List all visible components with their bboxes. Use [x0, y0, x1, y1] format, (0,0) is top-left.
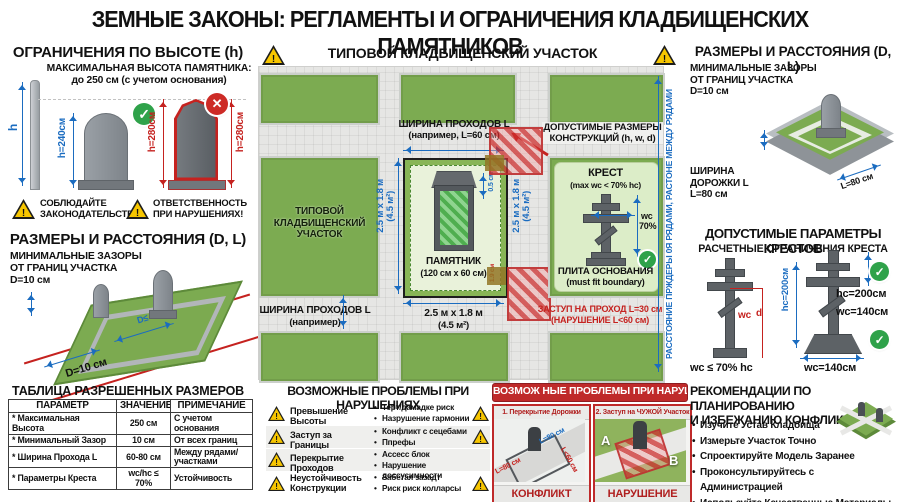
- table-row: * Ширина Прохода L 60-80 см Между рядами…: [9, 446, 253, 467]
- problem-bullets: Терт/дамадке риск Назрушение гармонии: [374, 403, 470, 424]
- warning-glyph: !: [126, 199, 149, 219]
- foreign-plot-art: A B: [595, 419, 686, 482]
- typical-plot-label-line1: ТИПОВОЙ: [261, 206, 378, 218]
- problem-bullet: Риск риск колларсы: [374, 484, 470, 495]
- encroachment-note: (НАРУШЕНИЕ L<60 см): [535, 315, 665, 325]
- foreign-plot-title: 2. Заступ на ЧУЖОЙ Участок: [595, 406, 690, 420]
- row-spacing-label: РАССТОЯНИЕ ПРЖДЕРЫ 0Я РЯДАМИ, РАСТОНЕ МЕ…: [664, 70, 674, 378]
- ok-monument-base: [78, 180, 134, 190]
- check-icon: ✓: [870, 330, 889, 349]
- iso-monument-base: [816, 128, 846, 138]
- allowed-cross-top-dim: [868, 252, 869, 286]
- violation-caption: НАРУШЕНИЕ: [595, 485, 690, 502]
- liability-warning: ОТВЕТСТВЕННОСТЬ ПРИ НАРУШЕНИЯХ!: [153, 197, 255, 219]
- measuring-pole: [30, 80, 40, 190]
- problem-row: ! Превышение Высоты Терт/дамадке риск На…: [266, 403, 490, 425]
- plot-iso-illustration: D≤ D=10 см: [25, 266, 243, 378]
- warning-icon: !: [653, 45, 676, 65]
- iso-path-label: L=80 см: [839, 171, 874, 191]
- allowed-cross-h-label: hc=200см: [836, 288, 886, 300]
- limit-cross-dim-top: [730, 288, 762, 289]
- bad-monument-base: [168, 180, 226, 190]
- allowed-cross-w-label: wc=140см: [836, 306, 888, 318]
- compliance-warning-line2: ЗАКОНОДАТЕЛЬСТВО!: [40, 208, 132, 219]
- problem-bullet: Ассесс блок: [374, 450, 474, 461]
- cell: * Параметры Креста: [9, 468, 117, 489]
- ok-monument-dim-line: [73, 113, 74, 188]
- path-width-note: ШИРИНА ДОРОЖКИ L L=80 см: [690, 166, 749, 201]
- path-width-line2: ДОРОЖКИ L: [690, 178, 749, 190]
- col-note: ПРИМЕЧАНИЕ: [171, 400, 253, 413]
- grass-block: [548, 73, 665, 125]
- mini-plot-iso: [836, 400, 896, 448]
- cell: * Максимальная Высота: [9, 413, 117, 434]
- warning-glyph: !: [268, 429, 285, 444]
- limit-cross-dim: [762, 288, 763, 358]
- recommendation-item: Проконсультируйтесь с Администрацией: [692, 465, 898, 496]
- warning-icon: !: [472, 476, 489, 491]
- warning-icon: !: [126, 199, 149, 219]
- plan-title: ТИПОВОЙ КЛАДБИЩЕНСКИЙ УЧАСТОК: [295, 45, 630, 61]
- iso-gap-dim: [764, 130, 765, 150]
- col-parameter: ПАРАМЕТР: [9, 400, 117, 413]
- path-overlap-panel: 1. Перекрытие Дорожки L=80 см L=80 см L<…: [492, 404, 591, 502]
- plot-left-dim-line: [398, 158, 399, 294]
- plot-b-label: B: [669, 453, 678, 468]
- check-icon: ✓: [870, 262, 889, 281]
- cross-plot-inner: КРЕСТ (max wc < 70% hc) wc 70% ✓ ПЛИТА О…: [554, 162, 659, 292]
- table-row: * Минимальный Зазор 10 см От всех границ: [9, 434, 253, 446]
- allowed-cross-w-bottom-label: wc=140см: [804, 362, 856, 374]
- warning-glyph: !: [472, 476, 489, 491]
- path-overlap-title: 1. Перекрытие Дорожки: [494, 406, 589, 420]
- problem-label: Неустойчивость Конструкции: [290, 474, 372, 494]
- path-overlap-art: L=80 см L=80 см L<60 см: [494, 419, 585, 482]
- typical-plot-label-line2: КЛАДБИЩЕНСКИЙ: [261, 218, 378, 230]
- max-height-subtitle: МАКСИМАЛЬНАЯ ВЫСОТА ПАМЯТНИКА:: [46, 63, 252, 74]
- grass-block: [259, 331, 380, 383]
- cross-w-pct: 70%: [639, 221, 656, 231]
- path-width-line1: ШИРИНА: [690, 166, 749, 178]
- overlap-corner-bottom: [487, 267, 506, 285]
- liability-warning-line2: ПРИ НАРУШЕНИЯХ!: [153, 208, 255, 219]
- plot-a-label: A: [601, 433, 610, 448]
- cell: * Ширина Прохода L: [9, 446, 117, 467]
- tall-monument-base: [149, 310, 177, 319]
- grass-block: [399, 331, 510, 383]
- monument-body-hatch: [440, 191, 468, 245]
- cross-w-label: wc: [641, 211, 653, 221]
- pole-height-dim-line: [22, 82, 23, 186]
- red-problems-section: ВОЗМОЖ НЫЕ ПРОБЛЕМЫ ПРИ НАРУШЕНИХ 1. Пер…: [492, 383, 688, 500]
- problem-bullet: Ппрефы: [374, 438, 470, 449]
- orthodox-cross-icon: [583, 194, 627, 264]
- bad-monument-dim-line-left: [163, 99, 164, 188]
- table-header-row: ПАРАМЕТР ЗНАЧЕНИЕ ПРИМЕЧАНИЕ: [9, 400, 253, 413]
- warning-icon: !: [268, 429, 285, 444]
- cell: wc/hc ≤ 70%: [117, 468, 171, 489]
- typical-plot-block: ТИПОВОЙ КЛАДБИЩЕНСКИЙ УЧАСТОК: [259, 156, 380, 298]
- problem-row: ! Перекрытие Проходов Ассесс блок Наруше…: [266, 449, 490, 471]
- allowed-cross-h-dim: [796, 262, 797, 348]
- warning-glyph: !: [268, 406, 285, 421]
- tall-monument-icon: [153, 270, 173, 314]
- cell: От всех границ: [171, 434, 253, 446]
- problem-bullet: Конфликт с сецебами: [374, 427, 470, 438]
- problem-bullets: Забетая зазадт Риск риск колларсы: [374, 473, 470, 494]
- warning-icon: !: [12, 199, 35, 219]
- allowed-cross-h-vertical: hc=200см: [780, 268, 791, 311]
- bad-monument-height-label-right: h=280см: [235, 112, 246, 152]
- cell: Устойчивость: [171, 468, 253, 489]
- problem-label: Превышение Высоты: [290, 407, 372, 427]
- warning-icon: !: [262, 45, 285, 65]
- passage-width-bottom-example: (например): [259, 317, 371, 328]
- warning-icon: !: [268, 476, 285, 491]
- left-sizes-title: РАЗМЕРЫ И РАССТОЯНИЯ (D, L): [4, 231, 252, 248]
- table-row: * Параметры Креста wc/hc ≤ 70% Устойчиво…: [9, 468, 253, 489]
- problem-label: Перекрытие Проходов: [290, 454, 372, 474]
- cemetery-plan: ТИПОВОЙ КЛАДБИЩЕНСКИЙ УЧАСТОК 0.5 см ПАМ…: [258, 66, 664, 380]
- grass-block: [548, 331, 665, 383]
- encroachment-label: ЗАСТУП НА ПРОХОД L=30 см: [535, 304, 665, 314]
- allowed-sizes-label2: КОНСТРУКЦИЙ (h, w, d): [542, 133, 663, 144]
- path-width-line3: L=80 см: [690, 189, 749, 201]
- problem-row: ! Заступ за Границы Конфликт с сецебами …: [266, 426, 490, 448]
- row-spacing-dim-line: [658, 76, 659, 372]
- monument-label: ПАМЯТНИК: [405, 256, 502, 267]
- cap-dim-line: [483, 173, 484, 199]
- cell: Между рядами/участками: [171, 446, 253, 467]
- problem-bullet: Забетая зазадт: [374, 473, 470, 484]
- grass-block: [399, 73, 517, 125]
- cell: 250 см: [117, 413, 171, 434]
- ok-monument-height-label: h=240см: [57, 118, 68, 158]
- problem-row: ! Неустойчивость Конструкции Забетая заз…: [266, 472, 490, 496]
- cross-plot: КРЕСТ (max wc < 70% hc) wc 70% ✓ ПЛИТА О…: [548, 156, 665, 298]
- infographic-root: ЗЕМНЫЕ ЗАКОНЫ: РЕГЛАМЕНТЫ И ОГРАНИЧЕНИЯ …: [0, 0, 900, 502]
- allowed-cross-w-dim: [800, 358, 864, 359]
- plot-dim-bottom-note: (4.5 м²): [403, 320, 504, 331]
- problem-bullets: Конфликт с сецебами Ппрефы: [374, 427, 470, 448]
- limit-cross-icon: [703, 258, 755, 358]
- foreign-plot-panel: 2. Заступ на ЧУЖОЙ Участок A B НАРУШЕНИЕ: [593, 404, 692, 502]
- warning-icon: !: [472, 429, 489, 444]
- liability-warning-line1: ОТВЕТСТВЕННОСТЬ: [153, 197, 255, 208]
- table-row: * Максимальная Высота 250 см С учетом ос…: [9, 413, 253, 434]
- warning-glyph: !: [12, 199, 35, 219]
- warning-icon: !: [472, 406, 489, 421]
- small-monument-icon: [93, 284, 109, 318]
- conflict-caption: КОНФЛИКТ: [494, 485, 589, 502]
- recommendation-item: Спроектируйте Модель Заранее: [692, 449, 898, 465]
- compliance-warning: СОБЛЮДАЙТЕ ЗАКОНОДАТЕЛЬСТВО!: [40, 197, 132, 219]
- cross-subtitle: (max wc < 70% hc): [555, 180, 656, 190]
- problem-bullet: Терт/дамадке риск: [374, 403, 470, 414]
- plot-dim-bottom-label: 2.5 м x 1.8 м: [403, 308, 504, 319]
- cell: * Минимальный Зазор: [9, 434, 117, 446]
- limit-cross-w-label: wc: [738, 310, 751, 321]
- col-value: ЗНАЧЕНИЕ: [117, 400, 171, 413]
- plot-bottom-dim-line: [403, 303, 504, 304]
- monument-body-icon: [434, 185, 474, 251]
- x-icon: ✕: [206, 93, 228, 115]
- ok-monument-icon: [84, 113, 128, 182]
- bad-monument-height-label-left: h=280см: [147, 112, 158, 152]
- warning-glyph: !: [268, 452, 285, 467]
- allowed-sizes-table: ПАРАМЕТР ЗНАЧЕНИЕ ПРИМЕЧАНИЕ * Максималь…: [8, 399, 253, 490]
- edge-gap-dim-line: [31, 292, 32, 316]
- limit-cross-d-label: d: [756, 308, 762, 319]
- cross-dim-line: [637, 195, 638, 257]
- allowed-sizes-label: ДОПУСТИМЫЕ РАЗМЕРЫ: [542, 122, 663, 133]
- warning-icon: !: [268, 452, 285, 467]
- cell: 10 см: [117, 434, 171, 446]
- cross-formula: wc ≤ 70% hc: [690, 362, 753, 374]
- bad-monument-dim-line-right: [231, 99, 232, 188]
- height-section-title: ОГРАНИЧЕНИЯ ПО ВЫСОТЕ (h): [4, 44, 252, 61]
- cell: С учетом основания: [171, 413, 253, 434]
- warning-glyph: !: [472, 429, 489, 444]
- base-plate-note: (must fit boundary): [555, 277, 656, 287]
- pole-height-label: h: [6, 124, 20, 131]
- typical-plot-label: ТИПОВОЙ КЛАДБИЩЕНСКИЙ УЧАСТОК: [261, 206, 378, 241]
- recommendation-item: Используйте Качественные Материалы: [692, 496, 898, 502]
- warning-glyph: !: [262, 45, 285, 65]
- compliance-warning-line1: СОБЛЮДАЙТЕ: [40, 197, 132, 208]
- warning-icon: !: [268, 406, 285, 421]
- overlap-corner-top: [485, 155, 504, 171]
- cross-title: КРЕСТ: [555, 167, 656, 179]
- red-problems-title: ВОЗМОЖ НЫЕ ПРОБЛЕМЫ ПРИ НАРУШЕНИХ: [492, 383, 688, 402]
- passage-width-arrow: [343, 295, 344, 329]
- cell: 60-80 см: [117, 446, 171, 467]
- problem-label: Заступ за Границы: [290, 431, 372, 451]
- typical-plot-label-line3: УЧАСТОК: [261, 229, 378, 241]
- grass-block: [259, 73, 380, 125]
- passage-width-bottom-label: ШИРИНА ПРОХОДОВ L: [259, 305, 371, 316]
- cross-w-dim-line: [591, 215, 635, 216]
- plot-dim-left-label: 2.5 м x 1.8 м (4.5 м²): [376, 179, 396, 233]
- plot-dim-right-label: 2.5 м x 1.8 м (4.5 м²): [512, 179, 532, 233]
- warning-glyph: !: [653, 45, 676, 65]
- problem-bullet: Назрушение гармонии: [374, 414, 470, 425]
- warning-glyph: !: [268, 476, 285, 491]
- plot-iso-right: L=80 см: [762, 72, 898, 198]
- max-height-limit: до 250 см (с учетом основания): [46, 75, 252, 86]
- warning-glyph: !: [472, 406, 489, 421]
- base-plate-label: ПЛИТА ОСНОВАНИЯ: [555, 266, 656, 277]
- min-gap-note-line1: МИНИМАЛЬНЫЕ ЗАЗОРЫ: [10, 251, 142, 263]
- table-title: ТАБЛИЦА РАЗРЕШЕННЫХ РАЗМЕРОВ: [4, 384, 252, 398]
